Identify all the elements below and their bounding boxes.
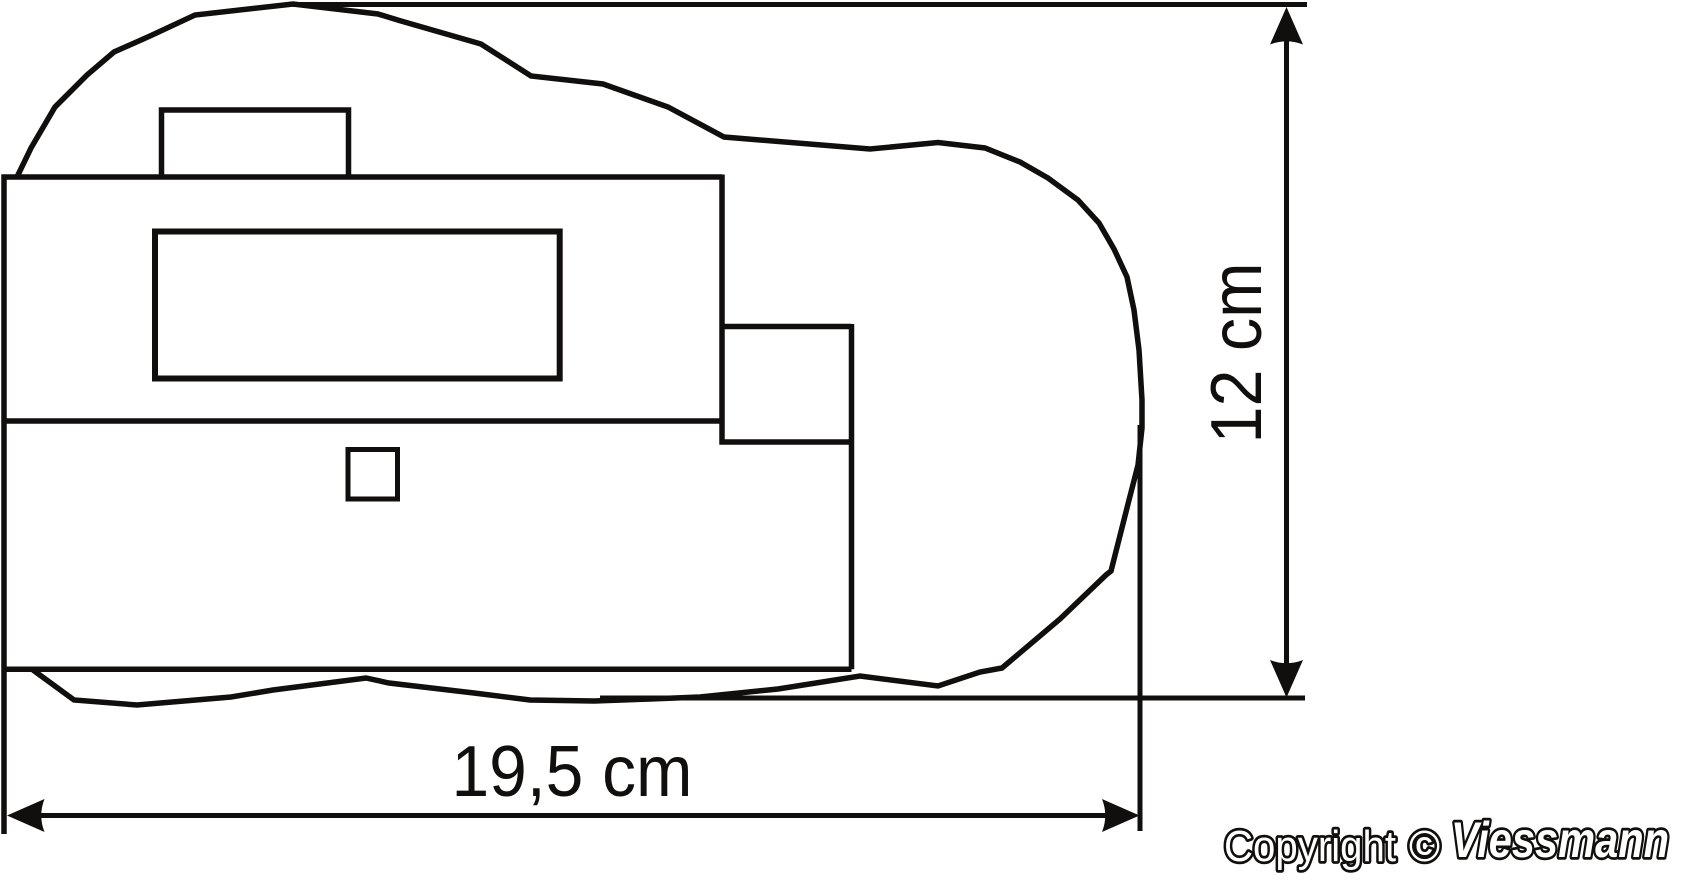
svg-text:Viessmann: Viessmann	[1451, 812, 1669, 868]
svg-text:Copyright: Copyright	[1224, 822, 1396, 871]
svg-text:12 cm: 12 cm	[1197, 263, 1277, 444]
svg-text:19,5 cm: 19,5 cm	[452, 732, 693, 812]
svg-text:©: ©	[1409, 822, 1440, 871]
